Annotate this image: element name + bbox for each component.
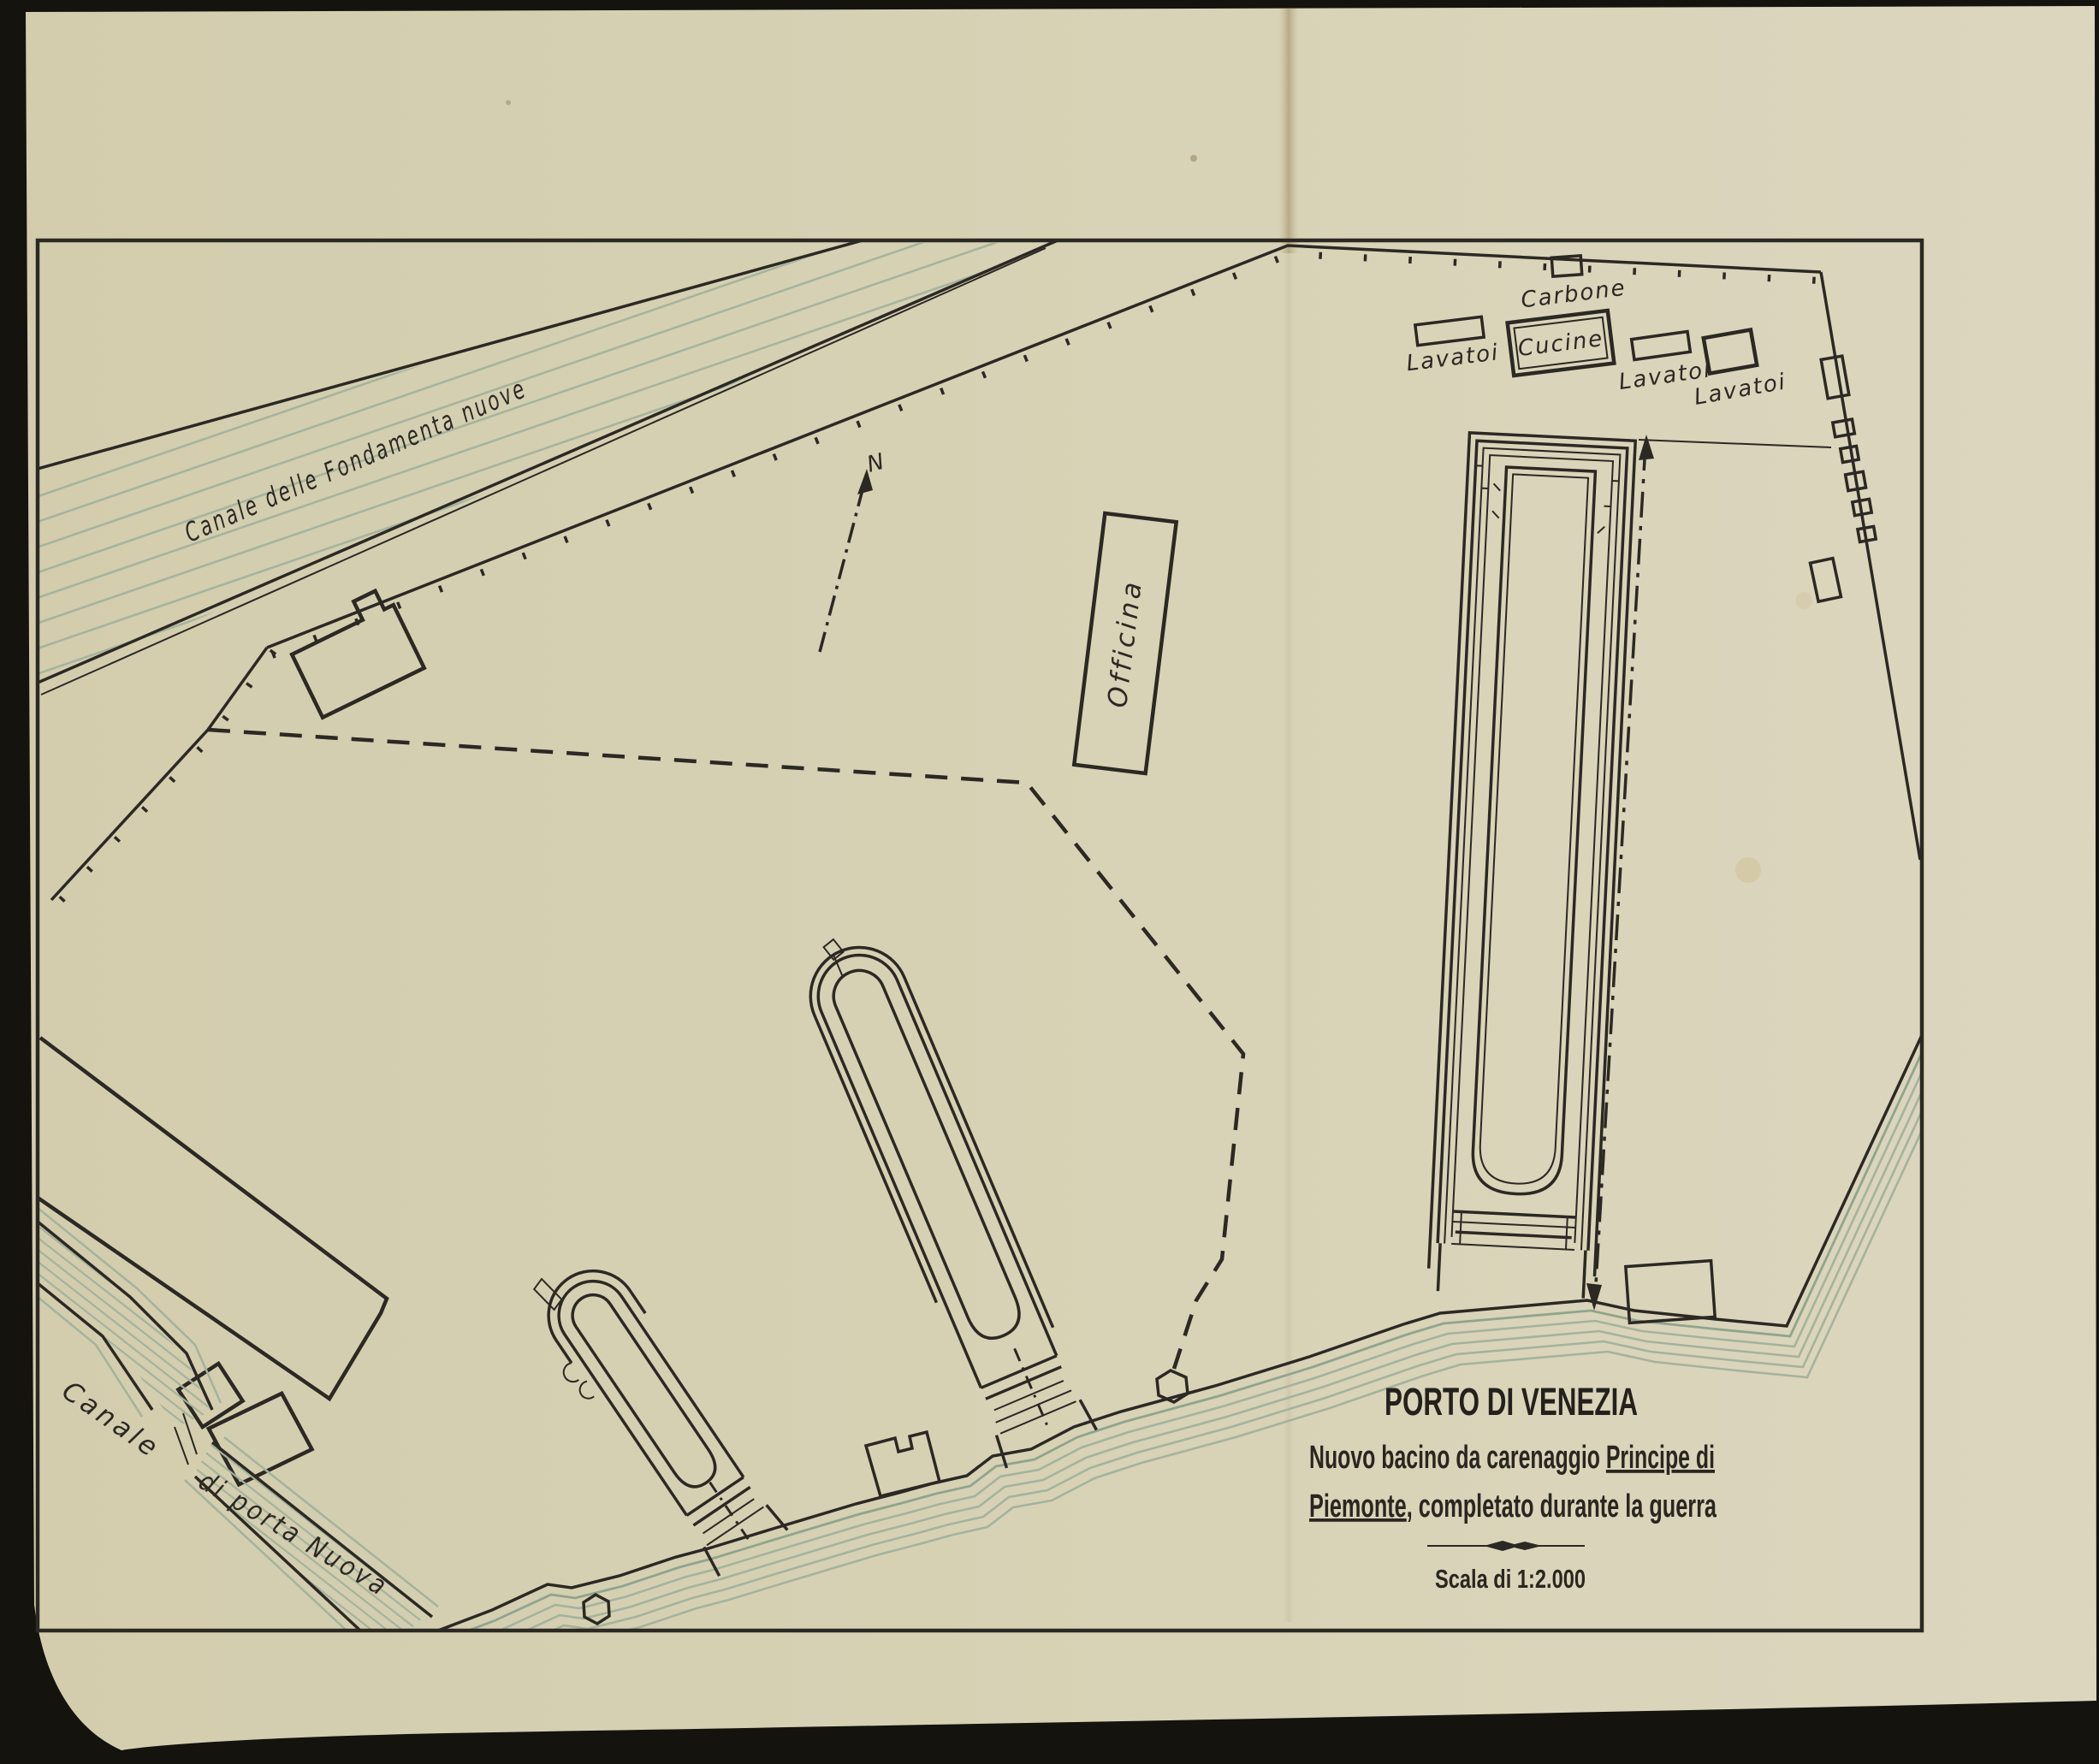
map-plate: Canale delle Fondamenta nuove: [0, 0, 2099, 1764]
scanned-book-page: Canale delle Fondamenta nuove: [0, 0, 2099, 1764]
paper-sheet: [26, 6, 2096, 1750]
paper-stain: [1795, 592, 1812, 609]
map-title: PORTO DI VENEZIA: [1385, 1380, 1638, 1424]
map-subtitle-line1: Nuovo bacino da carenaggio Principe di: [1309, 1440, 1715, 1476]
subtitle-1-plain: Nuovo bacino da carenaggio: [1309, 1440, 1606, 1476]
subtitle-2-plain: , completato durante la guerra: [1407, 1489, 1717, 1524]
paper-stain: [1190, 155, 1197, 162]
paper-stain: [506, 100, 511, 105]
subtitle-1-underlined: Principe di: [1606, 1440, 1715, 1476]
fold-crease-lower: [1283, 253, 1295, 1622]
subtitle-2-underlined: Piemonte: [1309, 1489, 1407, 1524]
map-scale-label: Scala di 1:2.000: [1435, 1564, 1586, 1594]
paper-stain: [1735, 857, 1761, 883]
fold-crease: [1278, 9, 1299, 253]
map-subtitle-line2: Piemonte, completato durante la guerra: [1309, 1489, 1717, 1524]
